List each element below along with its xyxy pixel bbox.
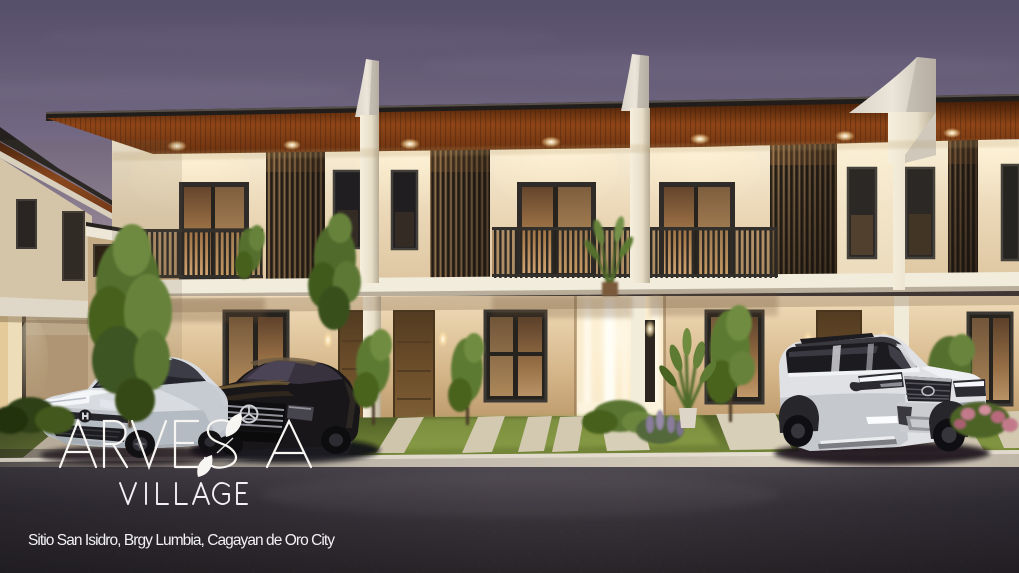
svg-text:Sitio San Isidro, Brgy Lumbia,: Sitio San Isidro, Brgy Lumbia, Cagayan d… [28,532,335,549]
